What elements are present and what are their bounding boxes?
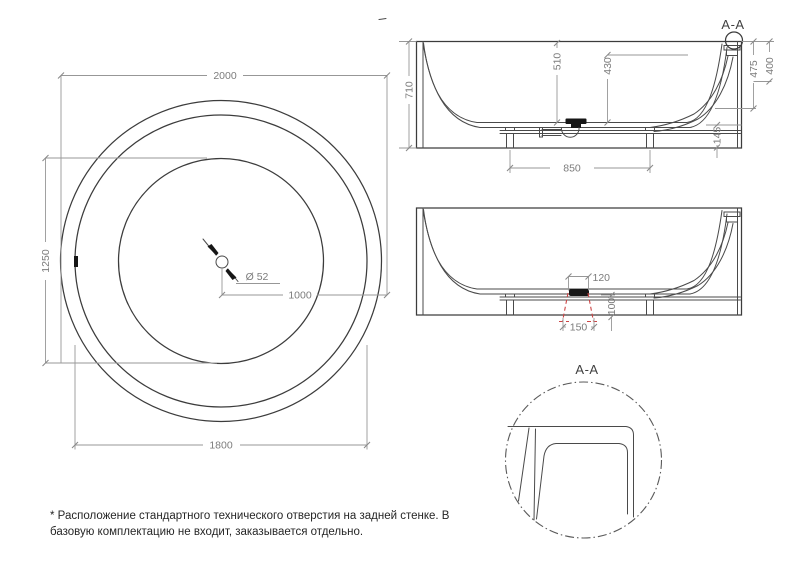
dim-bottom-clearance: 145 — [712, 127, 724, 145]
leader-arrow-icon — [208, 244, 219, 256]
tub-outline-section — [417, 42, 742, 149]
section-marker-circle — [726, 32, 743, 49]
drawing-svg: 2000 1800 1250 1000 — [0, 0, 800, 572]
technical-hole-marker — [74, 256, 78, 267]
detail-label: A-A — [575, 362, 598, 377]
dim-hole-bottom-width: 150 — [570, 322, 588, 334]
dimensions-hole-view: 120 150 100 — [560, 272, 618, 334]
dim-overflow-height-b: 400 — [764, 57, 776, 75]
dim-bowl-diameter: 1250 — [40, 249, 52, 273]
dim-overflow-height-a: 475 — [748, 60, 760, 78]
drain-diameter-label: Ø 52 — [246, 271, 269, 283]
dimensions-top: 2000 1800 1250 1000 — [40, 70, 390, 452]
tub-outline-top — [61, 101, 382, 422]
side-section-view: A-A 710 510 430 — [399, 17, 776, 175]
drain-fitting — [569, 289, 589, 296]
dim-hole-height: 100 — [606, 298, 618, 316]
footnote-line2: базовую комплектацию не входит, заказыва… — [50, 526, 363, 538]
dim-hole-top-width: 120 — [593, 272, 611, 284]
support-frame — [500, 128, 741, 149]
drain-top — [203, 239, 238, 282]
dim-total-height: 710 — [404, 81, 416, 99]
support-frame — [500, 294, 741, 315]
top-view: 2000 1800 1250 1000 — [40, 70, 390, 452]
technical-drawing-page: 2000 1800 1250 1000 — [0, 0, 800, 572]
detail-boundary-circle — [506, 382, 662, 538]
rim-cross-section — [508, 427, 634, 521]
top-dash-mark — [379, 19, 386, 20]
tub-outline-hole-view — [417, 208, 742, 322]
section-label: A-A — [721, 17, 744, 32]
detail-a-a-view: A-A — [506, 362, 662, 538]
dim-center-to-edge: 1000 — [288, 290, 312, 302]
dim-water-depth: 430 — [602, 57, 614, 75]
technical-hole-side-view: 120 150 100 — [417, 208, 742, 334]
footnote-line1: * Расположение стандартного технического… — [50, 510, 449, 522]
section-marker: A-A — [721, 17, 744, 49]
footnote: * Расположение стандартного технического… — [50, 508, 480, 541]
dim-inner-depth: 510 — [552, 53, 564, 71]
leader-arrow-icon — [226, 269, 237, 281]
dim-outer-diameter: 2000 — [213, 70, 237, 82]
dim-feet-span: 850 — [563, 163, 581, 175]
dim-rim-diameter: 1800 — [209, 440, 233, 452]
